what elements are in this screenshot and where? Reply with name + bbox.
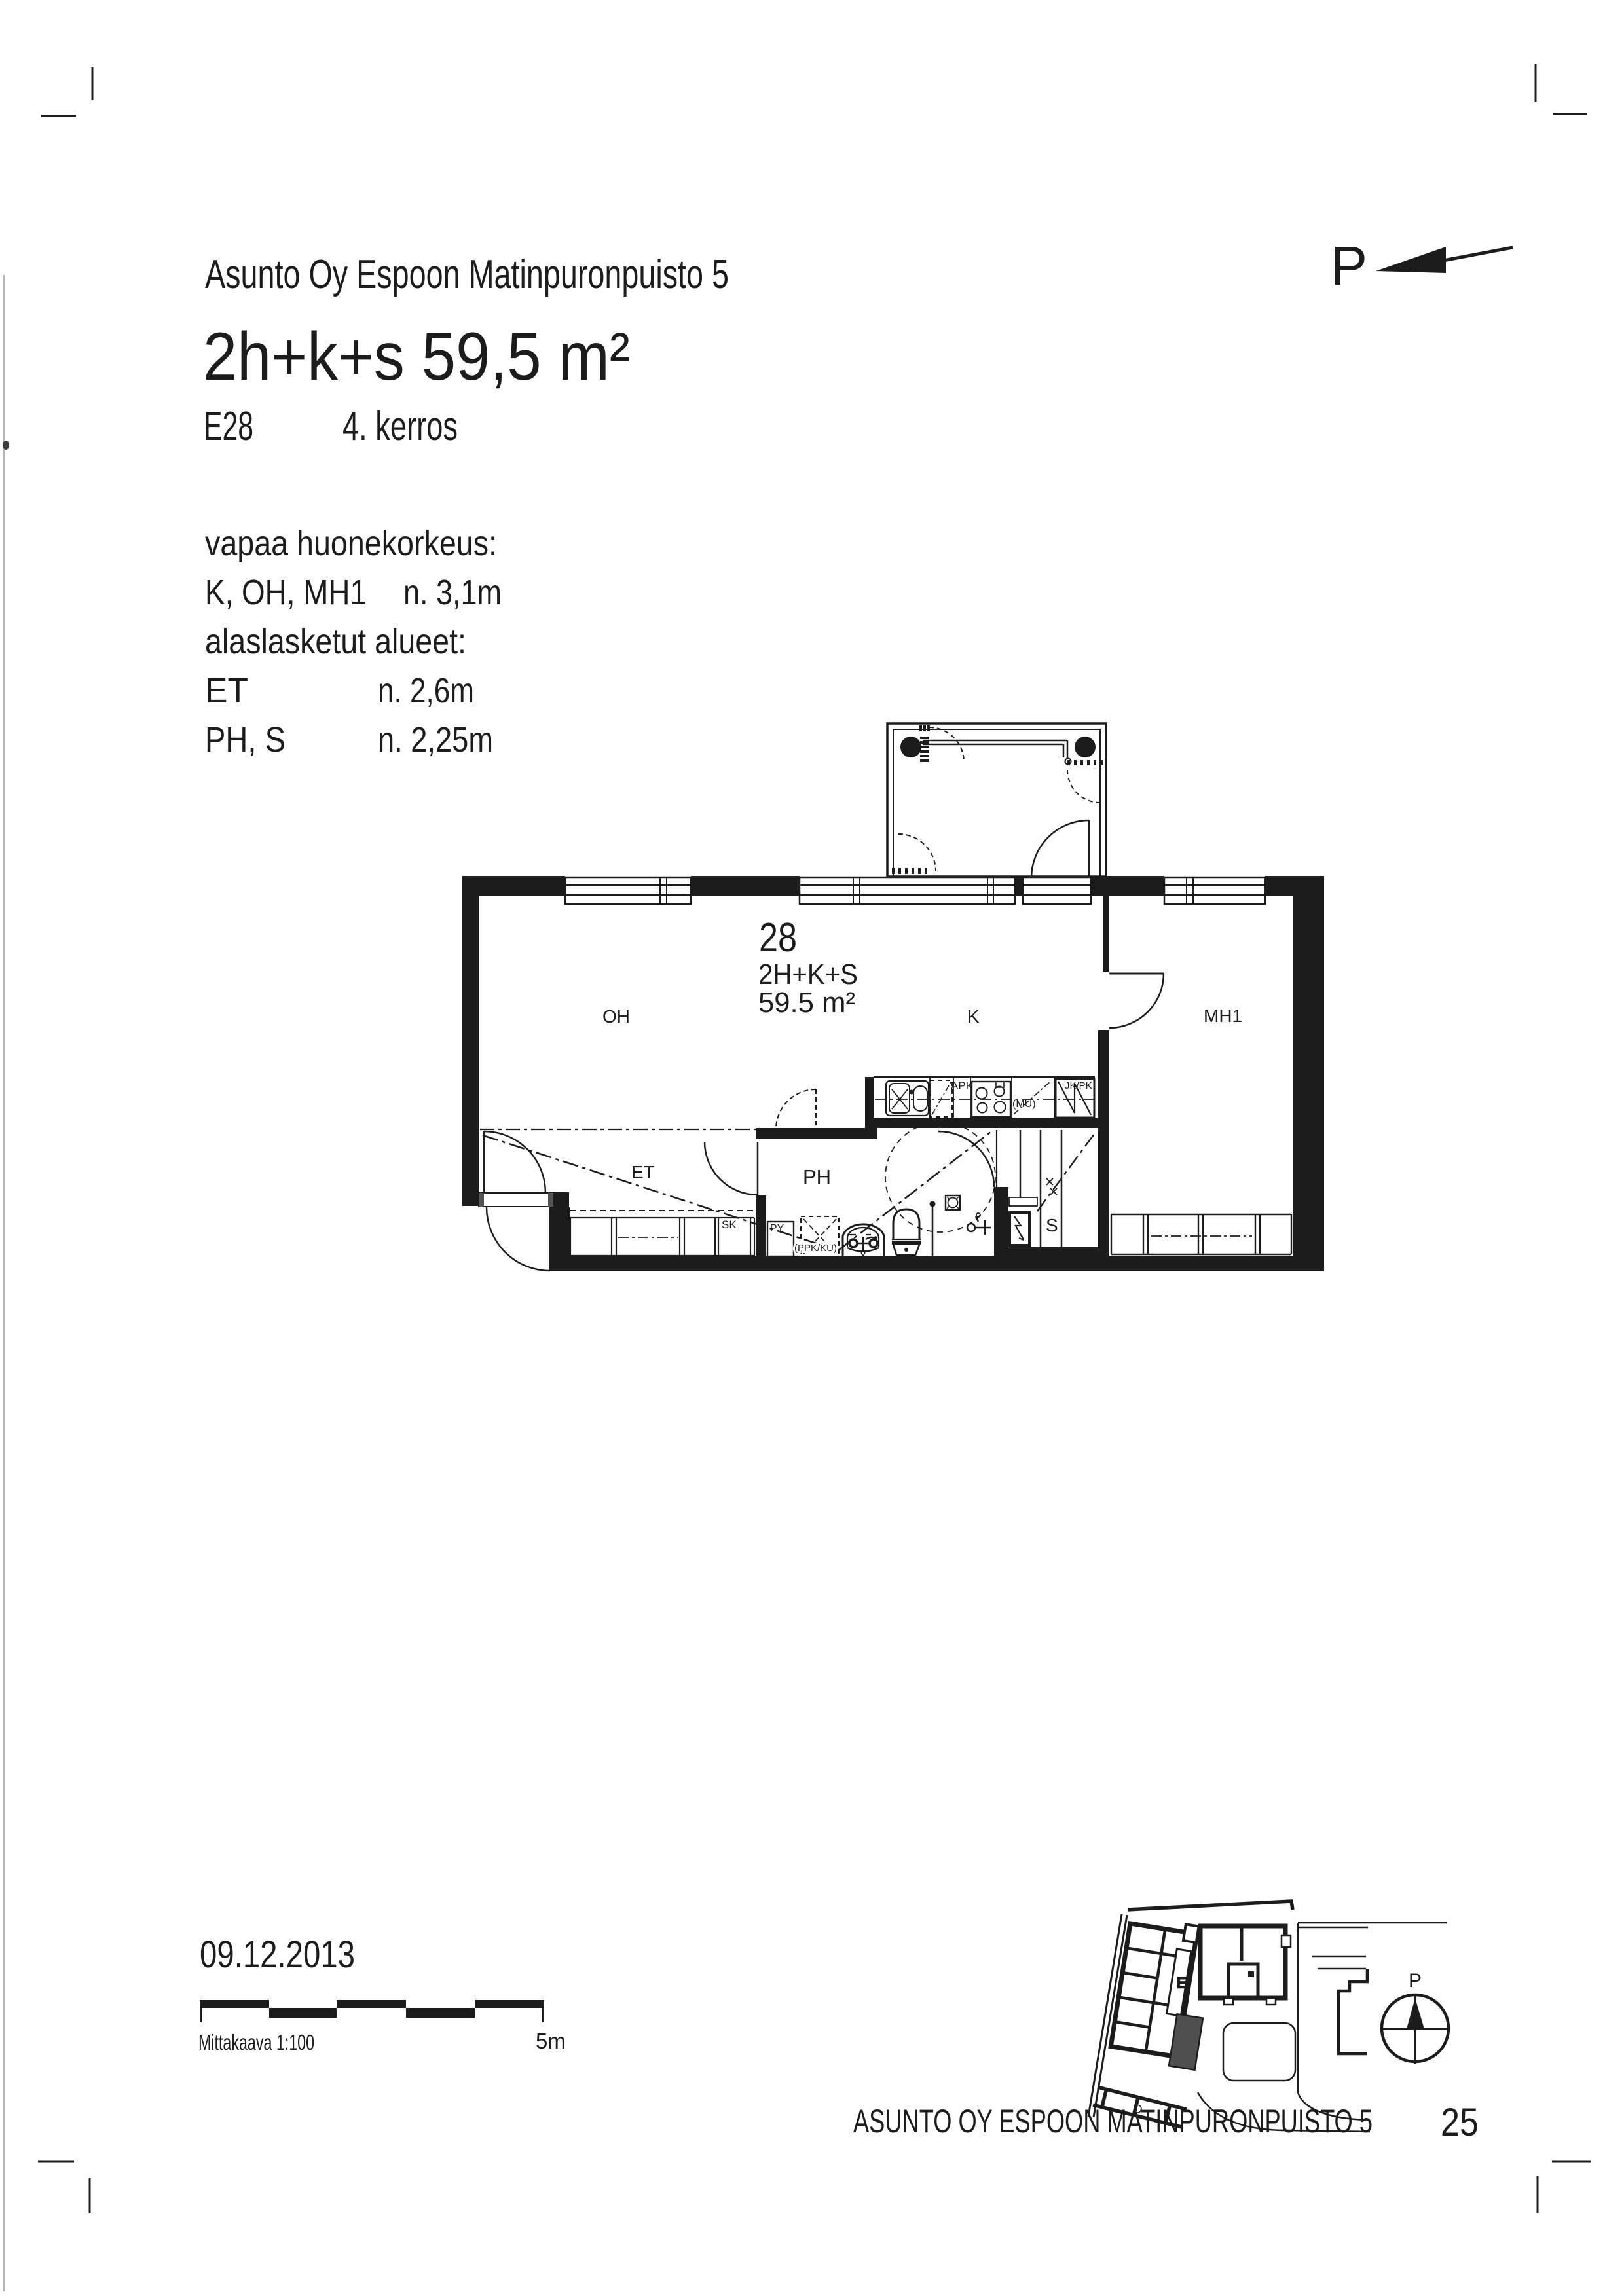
svg-text:n. 2,25m: n. 2,25m: [378, 720, 493, 759]
svg-text:K: K: [967, 1006, 980, 1027]
svg-text:2H+K+S: 2H+K+S: [758, 958, 858, 991]
svg-text:OH: OH: [602, 1006, 630, 1027]
svg-text:(MU): (MU): [1012, 1099, 1036, 1110]
svg-text:vapaa huonekorkeus:: vapaa huonekorkeus:: [205, 524, 497, 563]
svg-text:alaslasketut alueet:: alaslasketut alueet:: [205, 622, 466, 661]
svg-text:ASUNTO OY ESPOON MATINPURONPUI: ASUNTO OY ESPOON MATINPURONPUISTO 5: [853, 2103, 1373, 2140]
svg-text:25: 25: [1441, 2100, 1479, 2144]
svg-text:P: P: [1331, 235, 1367, 297]
svg-text:MH1: MH1: [1204, 1006, 1242, 1026]
svg-text:Mittakaava 1:100: Mittakaava 1:100: [198, 2030, 314, 2054]
svg-text:59.5 m²: 59.5 m²: [758, 987, 855, 1019]
svg-text:(PPK/KU): (PPK/KU): [794, 1243, 837, 1254]
svg-text:PH, S: PH, S: [205, 720, 286, 759]
svg-text:SK: SK: [722, 1218, 737, 1231]
svg-text:n. 2,6m: n. 2,6m: [378, 671, 474, 710]
svg-text:ET: ET: [631, 1162, 655, 1182]
svg-text:K, OH, MH1: K, OH, MH1: [205, 573, 367, 612]
svg-text:09.12.2013: 09.12.2013: [200, 1933, 355, 1976]
svg-text:APK: APK: [951, 1080, 974, 1092]
svg-text:2h+k+s 59,5 m²: 2h+k+s 59,5 m²: [203, 319, 630, 395]
svg-text:n. 3,1m: n. 3,1m: [403, 573, 502, 612]
svg-text:Asunto Oy Espoon Matinpuronpui: Asunto Oy Espoon Matinpuronpuisto 5: [205, 252, 729, 297]
svg-text:P: P: [1409, 1970, 1422, 1992]
svg-text:5m: 5m: [536, 2029, 566, 2053]
svg-text:E28: E28: [204, 404, 253, 449]
svg-text:E: E: [1177, 1975, 1187, 1991]
svg-text:4. kerros: 4. kerros: [342, 404, 458, 449]
svg-text:JK/PK: JK/PK: [1065, 1080, 1092, 1091]
svg-text:PY: PY: [770, 1223, 784, 1234]
svg-text:ET: ET: [205, 671, 248, 710]
svg-text:S: S: [1046, 1215, 1058, 1235]
svg-text:28: 28: [759, 915, 797, 960]
svg-text:PH: PH: [803, 1165, 831, 1188]
